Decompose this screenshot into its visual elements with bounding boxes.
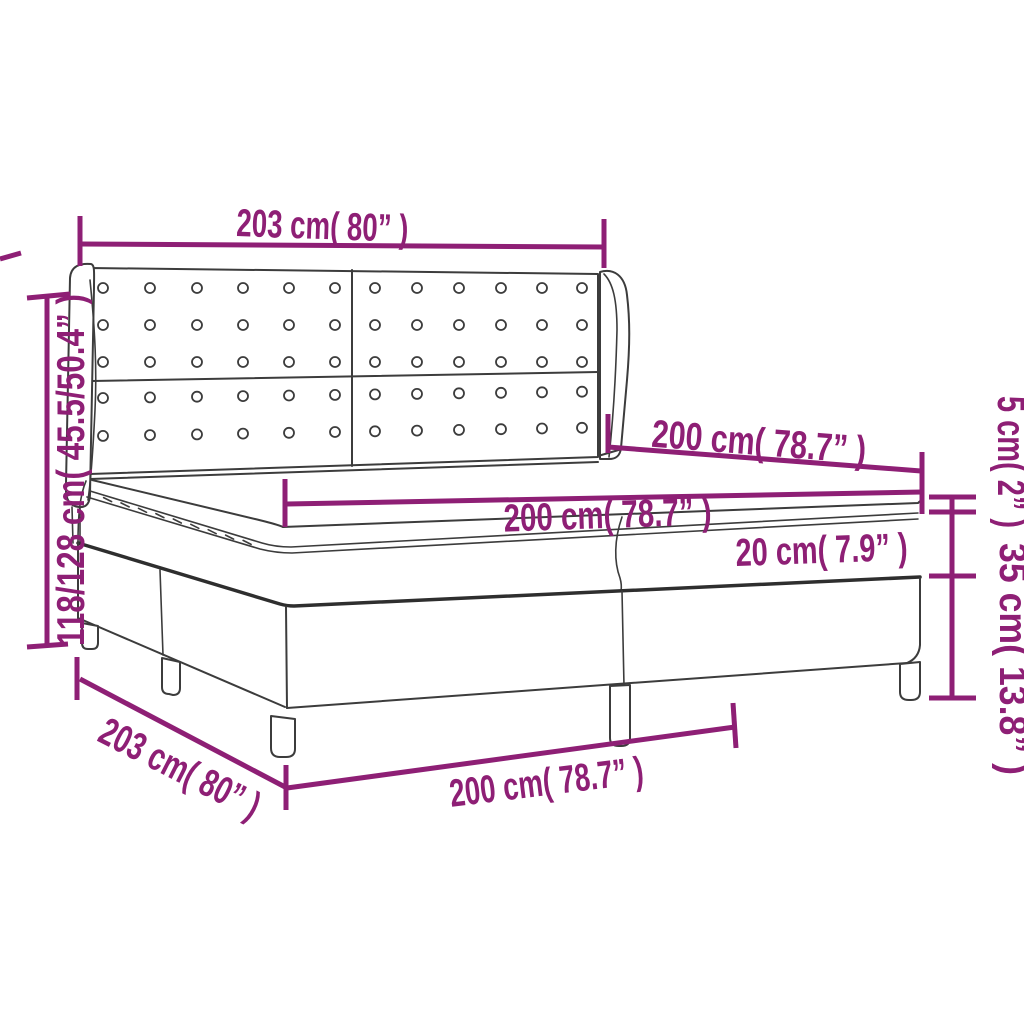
zipper-tooth [173, 519, 181, 523]
tuft-button [454, 388, 464, 398]
zipper-tooth [156, 514, 164, 518]
headboard-panel [90, 268, 598, 474]
label-mattress-height: 20 cm( 7.9” ) [735, 526, 908, 575]
tuft-button [496, 283, 506, 293]
label-base-height: 35 cm( 13.8” ) [991, 543, 1024, 775]
tuft-button [284, 357, 294, 367]
tuft-button [98, 393, 108, 403]
bed-leg [900, 662, 920, 700]
tuft-button [496, 424, 506, 434]
tuft-button [238, 283, 248, 293]
tuft-button [412, 357, 422, 367]
tuft-button [330, 320, 340, 330]
tuft-button [145, 357, 155, 367]
base-front-seam [622, 591, 624, 686]
tuft-button [370, 426, 380, 436]
tuft-button [98, 431, 108, 441]
tuft-button [330, 357, 340, 367]
tuft-button [496, 357, 506, 367]
tuft-button [284, 283, 294, 293]
tuft-button [454, 357, 464, 367]
tuft-button [98, 283, 108, 293]
tuft-button [577, 320, 587, 330]
tuft-button [412, 426, 422, 436]
tuft-button [98, 357, 108, 367]
tuft-button [370, 357, 380, 367]
tuft-button [284, 428, 294, 438]
tuft-button [577, 387, 587, 397]
tuft-button [412, 320, 422, 330]
tuft-button [454, 283, 464, 293]
tuft-button [577, 283, 587, 293]
tuft-button [145, 320, 155, 330]
tuft-button [454, 425, 464, 435]
tuft-button [370, 389, 380, 399]
tuft-button [192, 357, 202, 367]
tuft-button [496, 320, 506, 330]
label-overall-height: 118/128 cm( 45.5/50.4” ) [50, 294, 93, 646]
label-mattress-length: 200 cm( 78.7” ) [503, 490, 712, 540]
tuft-button [537, 357, 547, 367]
tuft-button [537, 320, 547, 330]
tuft-button [370, 320, 380, 330]
tuft-button [145, 283, 155, 293]
tuft-button [577, 423, 587, 433]
tuft-button [454, 320, 464, 330]
tuft-button [98, 320, 108, 330]
dim-reference-dash [0, 253, 21, 259]
tuft-button [537, 424, 547, 434]
tuft-button [238, 357, 248, 367]
bed-illustration [66, 264, 924, 757]
dim-right-stack [929, 497, 976, 698]
tuft-button [238, 391, 248, 401]
tuft-button [370, 283, 380, 293]
dim-tick [733, 703, 736, 748]
base-front-bottom-edge [287, 663, 907, 708]
tuft-button [192, 429, 202, 439]
base-right-corner [907, 578, 920, 663]
bed-leg [162, 658, 180, 695]
tuft-button [412, 389, 422, 399]
tuft-button [330, 283, 340, 293]
tuft-button [145, 430, 155, 440]
tuft-button [537, 387, 547, 397]
zipper-tooth [139, 508, 147, 512]
tuft-button [238, 320, 248, 330]
zipper-tooth [191, 524, 199, 528]
tuft-button [412, 283, 422, 293]
tuft-button [577, 357, 587, 367]
bed-legs [82, 623, 920, 757]
tuft-button [330, 390, 340, 400]
bed-leg [610, 685, 630, 746]
tuft-button [284, 391, 294, 401]
tuft-button [537, 283, 547, 293]
zipper-tooth [104, 498, 112, 502]
tuft-button [192, 283, 202, 293]
tuft-button [192, 320, 202, 330]
tuft-button [145, 392, 155, 402]
label-base-length: 200 cm( 78.7” ) [447, 749, 646, 815]
label-bed-depth: 203 cm( 80” ) [92, 710, 267, 828]
tuft-button [192, 392, 202, 402]
label-topper-height: 5 cm( 2” ) [989, 396, 1024, 528]
label-headboard-width: 203 cm( 80” ) [236, 202, 409, 251]
dimension-diagram: 203 cm( 80” ) 118/128 cm( 45.5/50.4” ) 2… [0, 0, 1024, 1024]
tuft-button [284, 320, 294, 330]
base-left-seam [160, 570, 163, 655]
tuft-button [496, 388, 506, 398]
zipper-detail [104, 498, 252, 545]
tuft-button [330, 427, 340, 437]
zipper-tooth [121, 503, 129, 507]
bed-leg [271, 716, 295, 757]
tuft-button [238, 429, 248, 439]
label-bed-length-upper: 200 cm( 78.7” ) [650, 413, 868, 473]
base-front-left-corner [286, 607, 287, 708]
